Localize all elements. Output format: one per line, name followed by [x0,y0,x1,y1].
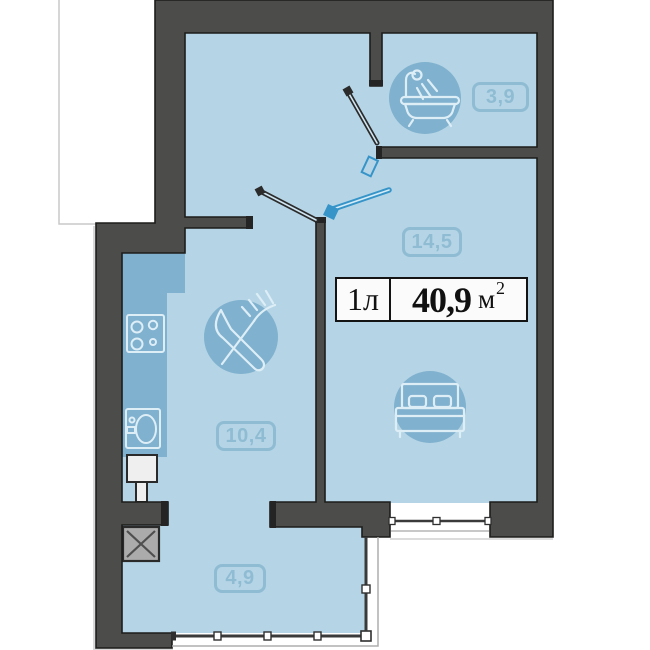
hall-area-value: 4,9 [225,567,254,590]
bathroom-area-badge: 3,9 [472,82,529,112]
apartment-type: 1л [347,281,379,318]
apartment-title: 1л 40,9 м 2 [335,277,528,322]
apartment-type-cell: 1л [337,279,391,320]
kitchen-area-value: 10,4 [226,425,267,448]
floor-plan-drawing [0,0,650,650]
floor-plan: 3,9 14,5 10,4 4,9 1л 40,9 м 2 [0,0,650,650]
hall-area-badge: 4,9 [214,564,266,593]
apartment-area-value: 40,9 [412,279,471,321]
kitchen-area-badge: 10,4 [216,421,276,451]
living-room-area-value: 14,5 [412,231,453,254]
living-room-area-badge: 14,5 [402,227,462,257]
crossed-box-vent-icon [123,527,159,561]
bathroom-area-value: 3,9 [486,86,515,109]
apartment-area-cell: 40,9 м 2 [391,279,526,320]
apartment-area-superscript: 2 [496,278,505,299]
apartment-area-unit: м [478,284,495,315]
adjacent-void [59,0,157,224]
